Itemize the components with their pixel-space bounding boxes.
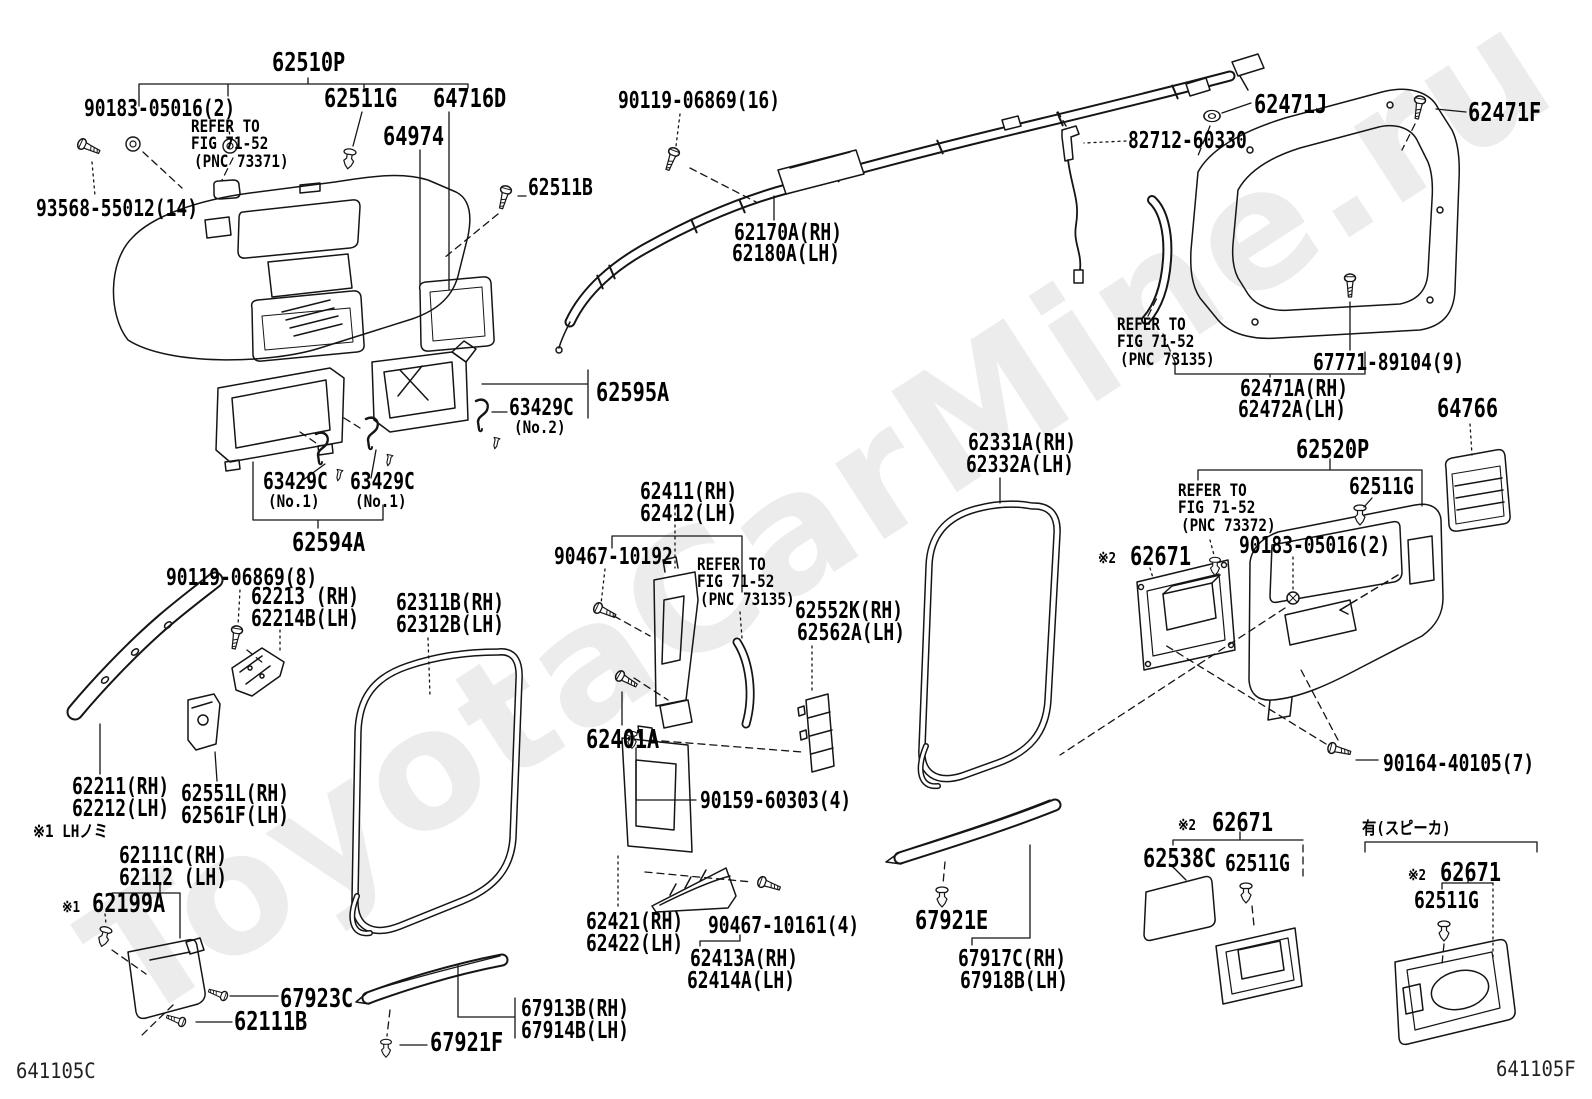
part-label-p62671a: 62671: [1130, 544, 1191, 570]
part-label-p62401A: 62401A: [586, 727, 659, 753]
clip-plate-62551L: [188, 694, 220, 750]
part-label-ref4c: (PNC 73135): [700, 592, 795, 609]
front-scuff-plate-67913B: [356, 956, 502, 1004]
windshield-pillar-garnish-62211: [75, 580, 215, 712]
wire-harness-82712: [1058, 112, 1083, 283]
part-label-p62595A: 62595A: [596, 380, 669, 406]
part-label-n90159: 90159-60303(4): [700, 790, 851, 813]
part-label-p67914B: 67914B(LH): [521, 1020, 629, 1043]
part-label-no1a: (No.1): [268, 494, 320, 511]
part-label-p62511Gr: 62511G: [1349, 476, 1414, 499]
part-label-p62111B: 62111B: [234, 1009, 307, 1035]
part-label-p62471J: 62471J: [1254, 92, 1327, 118]
part-label-p62414A: 62414A(LH): [687, 970, 795, 993]
part-label-p62510P: 62510P: [272, 50, 345, 76]
rear-weatherstrip-62331A: [921, 504, 1057, 786]
part-label-p62562A: 62562A(LH): [797, 622, 905, 645]
part-label-ref3b: FIG 71-52: [1178, 500, 1255, 517]
part-label-p63429Cb: 63429C: [350, 471, 415, 494]
part-label-p62214B: 62214B(LH): [251, 608, 359, 631]
center-pillar-upper-62411: [654, 557, 698, 728]
part-label-ref1c: (PNC 73371): [194, 154, 289, 171]
part-label-p62538C: 62538C: [1143, 846, 1216, 872]
part-label-p62199A: 62199A: [92, 891, 165, 917]
part-label-p62472A: 62472A(LH): [1238, 399, 1346, 422]
lid-64974: [252, 291, 365, 361]
part-label-p62594A: 62594A: [292, 530, 365, 556]
part-label-p62312B: 62312B(LH): [396, 614, 504, 637]
part-label-note2: 有(スピーカ): [1362, 821, 1451, 838]
speaker-garnish-62671-mid: [1137, 560, 1235, 670]
part-label-p62180A: 62180A(LH): [732, 243, 840, 266]
part-label-p64716D: 64716D: [433, 86, 506, 112]
part-label-n67771: 67771-89104(9): [1313, 352, 1464, 375]
part-label-p62520P: 62520P: [1296, 437, 1369, 463]
part-label-p67918B: 67918B(LH): [960, 970, 1068, 993]
part-label-n93568: 93568-55012(14): [36, 198, 198, 221]
part-label-ref1b: FIG 71-52: [191, 136, 268, 153]
part-label-p62671c: 62671: [1440, 860, 1501, 886]
part-label-p62412: 62412(LH): [640, 503, 737, 526]
part-label-n90119_16: 90119-06869(16): [618, 90, 780, 113]
blank-panel-62538C: [1144, 877, 1215, 941]
part-label-p62511Gm: 62511G: [1225, 853, 1290, 876]
part-label-star1b: ※1: [62, 900, 80, 915]
part-label-n90467a: 90467-10192: [554, 546, 673, 569]
part-label-star2c: ※2: [1408, 868, 1426, 883]
part-label-p63429Cn2: 63429C: [509, 397, 574, 420]
pillar-strip-73135: [737, 642, 750, 724]
pillar-bracket-62213: [232, 648, 284, 696]
d-pillar-garnish: [1146, 200, 1167, 320]
part-label-n90164: 90164-40105(7): [1383, 753, 1534, 776]
part-label-star2b: ※2: [1178, 818, 1196, 833]
speaker-garnish-62671-bottom-mid: [1216, 928, 1302, 1004]
register-box-62595A: [372, 341, 476, 432]
part-label-p62511Gb: 62511G: [1414, 890, 1479, 913]
part-label-p64766: 64766: [1437, 396, 1498, 422]
part-label-p67921E: 67921E: [915, 908, 988, 934]
front-weatherstrip-62311B: [352, 652, 519, 934]
part-label-p62112: 62112 (LH): [119, 867, 227, 890]
part-label-no2: (No.2): [514, 420, 566, 437]
part-label-p62511B: 62511B: [528, 177, 593, 200]
part-label-p64974: 64974: [383, 124, 444, 150]
part-label-p63429Ca: 63429C: [263, 471, 328, 494]
part-label-p62422: 62422(LH): [586, 933, 683, 956]
part-label-ref2b: FIG 71-52: [1117, 334, 1194, 351]
part-label-no1b: (No.1): [355, 494, 407, 511]
part-label-ref4b: FIG 71-52: [697, 574, 774, 591]
pillar-garnish-lower-62413A: [652, 868, 736, 912]
part-label-p62212: 62212(LH): [72, 798, 169, 821]
retainer-62552K: [798, 694, 834, 772]
part-label-p62471F: 62471F: [1468, 100, 1541, 126]
figure-code-left: 641105C: [16, 1061, 96, 1082]
part-label-p62561F: 62561F(LH): [181, 805, 289, 828]
part-label-n82712: 82712-60330: [1128, 130, 1247, 153]
part-label-n90183b: 90183-05016(2): [1239, 535, 1390, 558]
back-window-frame-62471A: [1191, 89, 1459, 338]
part-label-p62332A: 62332A(LH): [966, 454, 1074, 477]
parts-diagram-page: ToyotaCarMine.ru: [0, 0, 1592, 1099]
part-label-n90467b: 90467-10161(4): [708, 915, 859, 938]
cowl-side-trim-62111C: [128, 938, 205, 1018]
part-label-star2a: ※2: [1098, 551, 1116, 566]
figure-code-right: 641105F: [1496, 1059, 1576, 1080]
part-label-p62671b: 62671: [1212, 810, 1273, 836]
part-label-ref2c: (PNC 73135): [1120, 352, 1215, 369]
lid-64716D: [420, 277, 495, 351]
part-label-note1: ※1 LHノミ: [33, 824, 108, 841]
part-label-p67921F: 67921F: [430, 1030, 503, 1056]
speaker-garnish-62671-bottom-right: [1395, 940, 1515, 1045]
vent-64766: [1446, 450, 1511, 532]
register-frame-62594A: [216, 368, 344, 471]
part-label-p62511Gt: 62511G: [324, 86, 397, 112]
